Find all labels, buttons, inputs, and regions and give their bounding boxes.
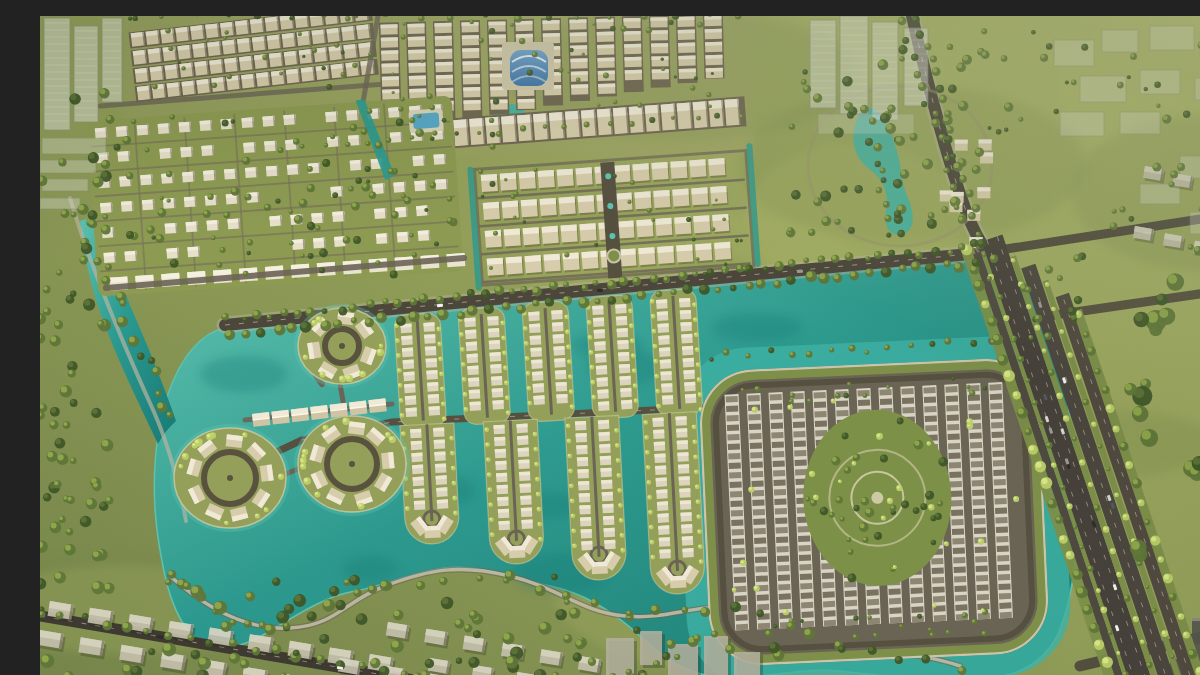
sunlight-overlay — [40, 16, 1200, 675]
aerial-render — [40, 16, 1200, 675]
masterplan-scene — [40, 16, 1200, 675]
